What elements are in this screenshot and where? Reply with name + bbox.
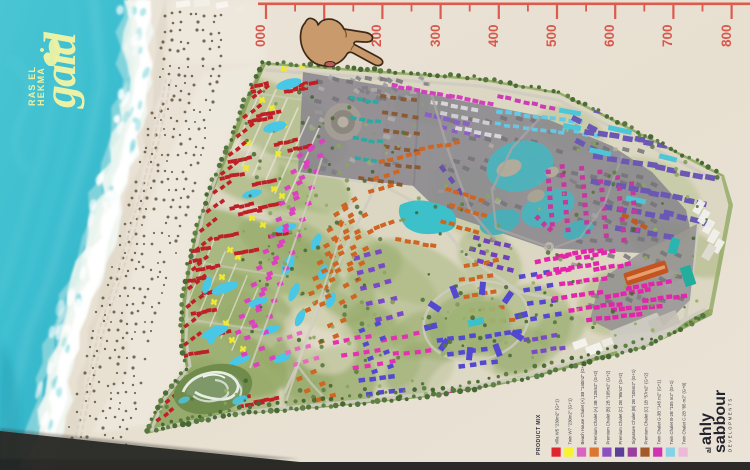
svg-text:300: 300 — [428, 24, 443, 47]
svg-text:Twin Chalet C-2B "85 m2" (G+0): Twin Chalet C-2B "85 m2" (G+0) — [682, 382, 687, 444]
svg-text:sabbour: sabbour — [712, 390, 729, 453]
svg-text:DEVELOPMENTS: DEVELOPMENTS — [728, 397, 733, 452]
svg-text:500: 500 — [544, 24, 559, 47]
svg-text:Signature Chalet (B) 2B "105m2: Signature Chalet (B) 2B "105m2" (G+1) — [631, 369, 636, 445]
svg-text:Villa W5 "230m2" (G+1): Villa W5 "230m2" (G+1) — [555, 399, 560, 445]
svg-text:Twin Chalet B-2B "105 m2" (G+1: Twin Chalet B-2B "105 m2" (G+1) — [669, 380, 674, 445]
svg-text:000: 000 — [253, 24, 268, 47]
svg-text:Twin Chalet G-3B "145 m2" (G+1: Twin Chalet G-3B "145 m2" (G+1) — [656, 379, 661, 444]
svg-text:Premium Chalet (C) 1B "57m2" (: Premium Chalet (C) 1B "57m2" (G+2) — [644, 372, 649, 444]
svg-text:Beach House Chalet (A) 3B "140: Beach House Chalet (A) 3B "140m2" (G+2) — [580, 361, 585, 444]
svg-text:Premium Chalet (B) 2B "105m2": Premium Chalet (B) 2B "105m2" (G+2) — [606, 370, 611, 444]
svg-text:Premium Chalet (A) 3B "128m2": Premium Chalet (A) 3B "128m2" (G+2) — [593, 370, 598, 444]
svg-text:600: 600 — [602, 24, 617, 47]
svg-text:800: 800 — [719, 24, 734, 47]
svg-text:Premium Chalet (C) 2B "85m2" (: Premium Chalet (C) 2B "85m2" (G+2) — [618, 372, 623, 444]
svg-text:Twin W7 "230m2" (G+1): Twin W7 "230m2" (G+1) — [567, 398, 572, 445]
svg-text:PRODUCT MIX: PRODUCT MIX — [536, 414, 542, 455]
svg-text:700: 700 — [660, 24, 675, 47]
svg-text:400: 400 — [486, 24, 501, 47]
svg-text:gaid: gaid — [34, 31, 85, 109]
